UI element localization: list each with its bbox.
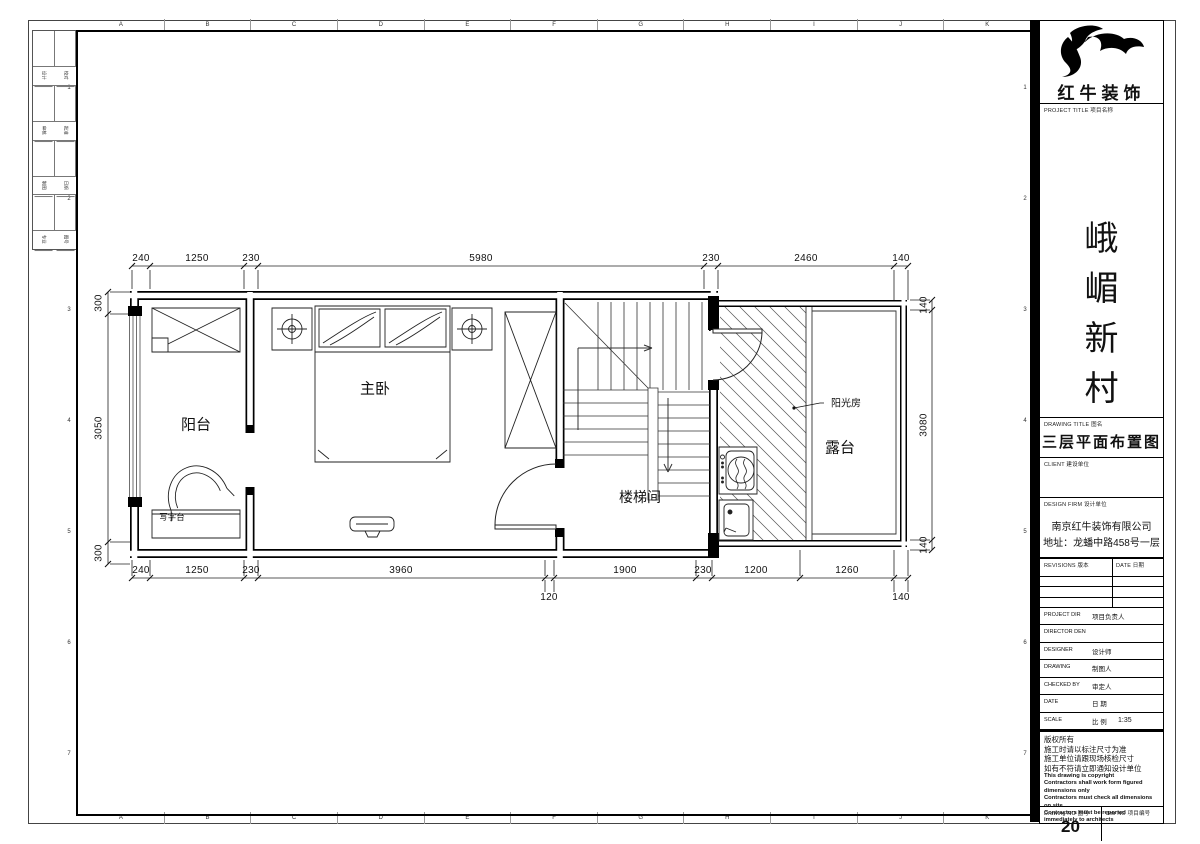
project-name-char: 峨 (1040, 214, 1163, 264)
field-row-drawing: DRAWING制图人 (1040, 660, 1163, 677)
design-firm-section: DESIGN FIRM 设计单位 南京红牛装饰有限公司 地址：龙蟠中路458号一… (1040, 498, 1163, 558)
dim-right-0: 140 (919, 296, 930, 314)
dim-top-5: 2460 (794, 253, 817, 264)
design-firm-address: 地址：龙蟠中路458号一层 (1040, 534, 1163, 549)
dim-left-2: 300 (94, 544, 105, 562)
field-row-director-den: DIRECTOR DEN (1040, 625, 1163, 642)
note-line-en: Contractors shall work form figured dime… (1044, 780, 1159, 795)
dim-right-1: 3080 (919, 413, 930, 436)
balcony-cabinet (152, 308, 240, 352)
room-label-master-bedroom: 主卧 (360, 378, 390, 399)
project-name: 峨嵋新村 (1040, 214, 1163, 414)
project-name-char: 嵋 (1040, 264, 1163, 314)
number-section: Drawing NO 图号 20 Job NO 项目编号 (1040, 807, 1163, 841)
note-line-zh: 施工单位请跟现场核检尺寸 (1044, 754, 1159, 764)
sunroom-hatch (483, 305, 1035, 542)
brand-logo-bull-swoosh-icon (1040, 23, 1161, 79)
dim-bottom-4: 1900 (613, 565, 636, 576)
field-row-date: DATE日 期 (1040, 695, 1163, 712)
drawing-sheet: ABCDEFGHIJK ABCDEFGHIJK 1234567 1234567 … (0, 0, 1200, 844)
wall-unit (350, 517, 394, 537)
logo-section: 红牛装饰 (1040, 21, 1163, 104)
dim-top-1: 1250 (185, 253, 208, 264)
dim-bottom2-1: 140 (892, 592, 910, 603)
revision-date-label: DATE 日期 (1116, 561, 1144, 569)
dim-top-0: 240 (132, 253, 150, 264)
client-section: CLIENT 建设单位 (1040, 458, 1163, 498)
field-row-project-dir: PROJECT DIR项目负责人 (1040, 608, 1163, 625)
job-no-cell: Job NO 项目编号 (1102, 807, 1163, 841)
dim-bottom-0: 240 (132, 565, 150, 576)
revision-empty-rows (1040, 576, 1163, 607)
drawing-title: 三层平面布置图 (1040, 431, 1163, 452)
nightstand-right (452, 308, 492, 350)
title-block: 红牛装饰 PROJECT TITLE 项目名称 峨嵋新村 DRAWING TIT… (1039, 20, 1164, 824)
notes-section: 版权所有施工时请以标注尺寸为准施工单位请跟现场核检尺寸如有不符请立即通知设计单位… (1040, 730, 1163, 807)
room-label-stairwell: 楼梯间 (619, 487, 661, 507)
note-line-zh: 版权所有 (1044, 735, 1159, 745)
revisions-label: REVISIONS 版本 (1044, 561, 1089, 569)
stairs (563, 302, 710, 500)
dim-bottom-3: 3960 (389, 565, 412, 576)
dim-top-2: 230 (242, 253, 260, 264)
signature-fields: PROJECT DIR项目负责人DIRECTOR DENDESIGNER设计师D… (1040, 608, 1163, 730)
dim-left-1: 3050 (94, 416, 105, 439)
company-name: 红牛装饰 (1040, 79, 1163, 104)
annotation-sunroom: 阳光房 (831, 395, 861, 410)
dim-top-6: 140 (892, 253, 910, 264)
sink (719, 500, 753, 540)
dim-bottom-1: 1250 (185, 565, 208, 576)
project-title-label: PROJECT TITLE 项目名称 (1044, 106, 1113, 114)
field-row-designer: DESIGNER设计师 (1040, 643, 1163, 660)
field-row-checked-by: CHECKED BY审定人 (1040, 678, 1163, 695)
window (127, 306, 142, 507)
design-firm-label: DESIGN FIRM 设计单位 (1044, 500, 1107, 508)
dim-right-2: 140 (919, 536, 930, 554)
drawing-title-section: DRAWING TITLE 图名 三层平面布置图 (1040, 418, 1163, 458)
note-line-zh: 施工时请以标注尺寸为准 (1044, 745, 1159, 755)
project-name-char: 村 (1040, 364, 1163, 414)
revisions-section: REVISIONS 版本 DATE 日期 (1040, 558, 1163, 608)
sunroom-leader (792, 403, 824, 410)
dim-top-3: 5980 (469, 253, 492, 264)
dim-bottom2-0: 120 (540, 592, 558, 603)
annotation-desk: 写字台 (159, 511, 185, 523)
stove (719, 447, 757, 494)
bedroom-door (495, 464, 556, 529)
design-firm-name: 南京红牛装饰有限公司 (1040, 518, 1163, 533)
dim-bottom-2: 230 (242, 565, 260, 576)
dim-bottom-7: 1260 (835, 565, 858, 576)
dim-top-4: 230 (702, 253, 720, 264)
room-label-terrace: 露台 (825, 437, 855, 458)
drawing-title-label: DRAWING TITLE 图名 (1044, 420, 1103, 428)
dim-left-0: 300 (94, 294, 105, 312)
drawing-no-label: Drawing NO 图号 (1044, 809, 1089, 817)
project-section: PROJECT TITLE 项目名称 峨嵋新村 (1040, 104, 1163, 418)
wardrobe (505, 312, 556, 448)
job-no-label: Job NO 项目编号 (1106, 809, 1150, 817)
dim-bottom-6: 1200 (744, 565, 767, 576)
room-label-balcony: 阳台 (181, 414, 211, 435)
drawing-no-value: 20 (1040, 817, 1101, 837)
nightstand-left (272, 308, 312, 350)
field-row-scale: SCALE比 例1:35 (1040, 713, 1163, 729)
note-line-zh: 如有不符请立即通知设计单位 (1044, 764, 1159, 774)
client-label: CLIENT 建设单位 (1044, 460, 1089, 468)
drawing-no-cell: Drawing NO 图号 20 (1040, 807, 1102, 841)
note-line-en: This drawing is copyright (1044, 773, 1159, 780)
project-name-char: 新 (1040, 314, 1163, 364)
dim-bottom-5: 230 (694, 565, 712, 576)
